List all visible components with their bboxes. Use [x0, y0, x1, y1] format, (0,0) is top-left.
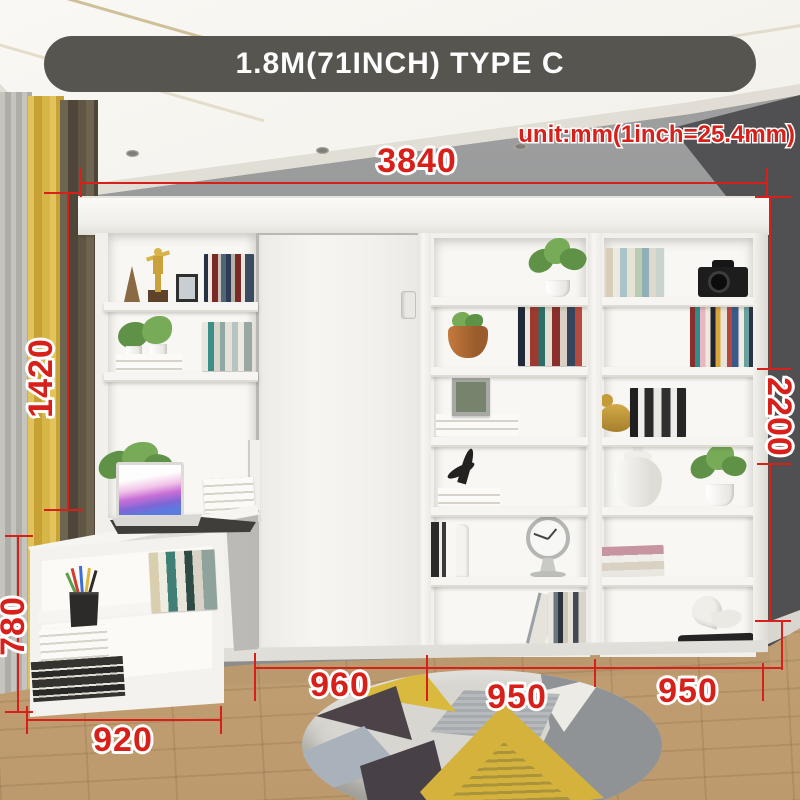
- dim-desk-height-label: 780: [0, 576, 32, 676]
- laptop-screen: [116, 462, 184, 518]
- dark-book-stack: [31, 656, 126, 702]
- dim-left-height-line: [67, 193, 69, 511]
- book-row: [148, 549, 217, 612]
- laptop: [110, 462, 256, 534]
- size-banner: 1.8M(71INCH) TYPE C: [44, 36, 756, 92]
- product-dimension-image: 3840 1420 2200 780 920 960 950 950 1.8M(…: [0, 0, 800, 800]
- dim-desk-width-label: 920: [73, 721, 173, 759]
- dim-total-height-line: [769, 197, 771, 369]
- dim-shelf1-width-label: 950: [467, 678, 567, 716]
- dim-overall-width-label: 3840: [347, 142, 487, 180]
- dim-left-height-label: 1420: [22, 318, 60, 438]
- unit-note: unit:mm(1inch=25.4mm): [518, 121, 795, 149]
- dim-shelf2-width-label: 950: [638, 672, 738, 710]
- dim-total-height-label: 2200: [760, 357, 798, 477]
- dim-bed-width-label: 960: [290, 666, 390, 704]
- dim-overall-width-line: [81, 182, 768, 184]
